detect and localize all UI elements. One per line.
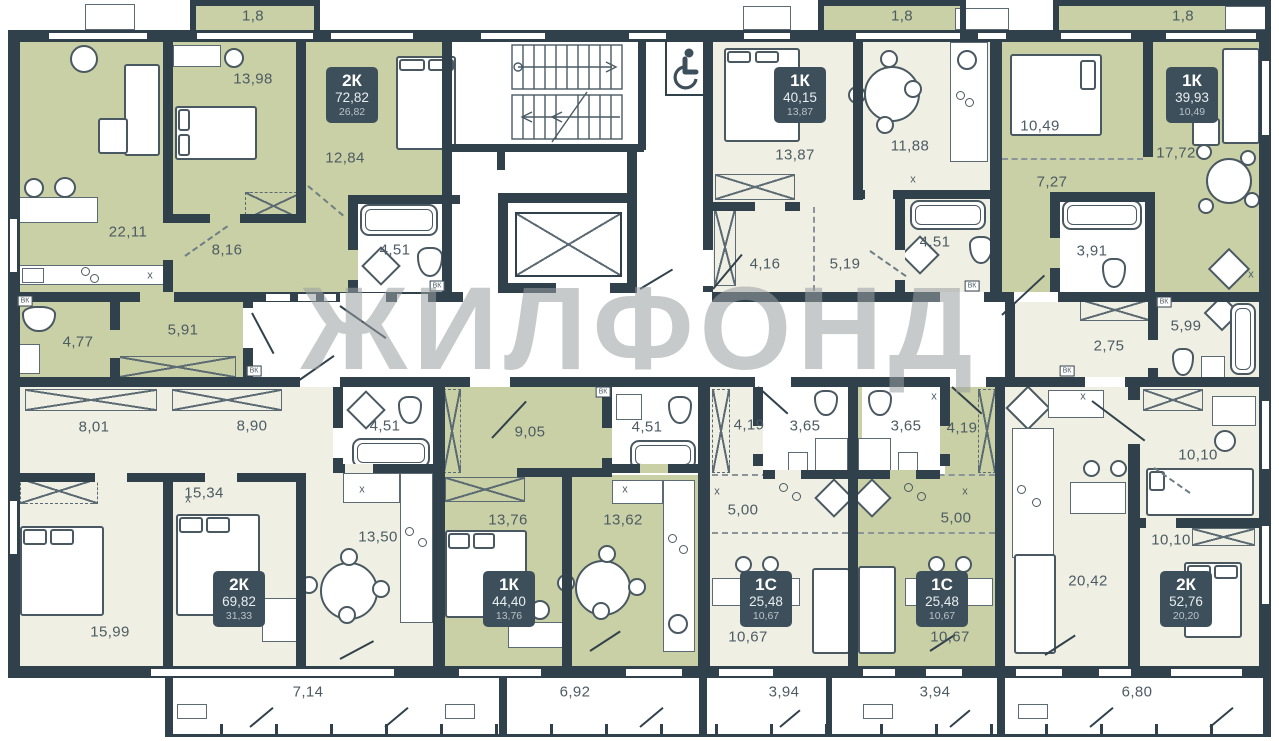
wall [296,473,306,666]
pillow [1214,565,1238,579]
wall-slot [298,294,316,301]
apartment-living-area: 20,20 [1167,610,1205,622]
door-opening [940,292,984,302]
chair [876,116,894,134]
stove [667,533,689,555]
vent-marker: x [622,485,628,496]
washing-machine [616,394,642,420]
chair [1240,150,1256,166]
window [150,668,395,677]
ceiling-lamp [70,45,98,73]
bar-counter [18,197,98,223]
room-area-label: 10,67 [930,630,970,645]
chair [1198,198,1214,214]
window [9,218,18,273]
wall [165,678,173,734]
wall [638,40,646,150]
wall [990,42,1002,294]
wall [433,387,445,666]
wall [190,0,196,32]
apartment-total-area: 69,82 [220,594,258,610]
chair [224,48,244,68]
window [718,668,774,677]
door-opening [865,190,893,199]
apartment-badge-1К: 1К40,1513,87 [774,67,826,123]
balcony-area-label: 1,8 [891,9,913,24]
apartment-total-area: 40,15 [781,90,819,106]
wall-slot [266,294,290,301]
door-opening [140,292,174,302]
wardrobe-hatch [1192,528,1255,546]
wall [8,30,20,678]
wall [1265,0,1271,30]
apartment-living-area: 13,76 [490,610,528,622]
apartment-total-area: 39,93 [1173,90,1211,106]
wardrobe-hatch [715,174,795,200]
door-opening [110,330,120,358]
dashed-divider [712,532,848,534]
room-area-label: 17,72 [1156,146,1196,161]
bathtub [1062,200,1142,230]
room-area-label: 8,01 [79,420,110,435]
wall [960,0,966,30]
window [977,32,1007,40]
chair [338,606,356,624]
wall [610,283,637,293]
room-area-label: 10,49 [1020,119,1060,134]
wall [1143,42,1153,157]
pillow [755,51,779,63]
wall [995,387,1005,666]
wall [314,0,320,32]
kitchen-sink [668,614,688,634]
stove [955,90,975,108]
room-area-label: 20,42 [1068,574,1108,589]
door-opening [95,473,127,482]
wall [163,473,173,666]
door-opening [333,428,343,458]
pillow [178,134,190,156]
apartment-type: 1С [747,576,785,594]
sofa [124,64,160,156]
room-area-label: 4,19 [947,421,978,436]
wall [1053,0,1059,30]
window [1170,668,1243,677]
window [48,32,148,40]
apartment-badge-2К: 2К69,8231,33 [213,571,265,627]
apartment-badge-1С: 1С25,4810,67 [916,571,968,627]
balcony-area-label: 3,94 [920,685,951,700]
kitchen-counter [400,473,433,623]
wall [699,678,707,734]
wall [498,283,556,293]
window [1015,668,1063,677]
bathtub [910,200,986,230]
vk-duct-label: ВК [18,296,33,307]
room-area-label: 11,88 [891,139,929,154]
apartment-living-area: 31,33 [220,610,258,622]
window [9,500,18,555]
chair [340,548,358,566]
window-bay [1225,6,1269,30]
dining-table [1070,482,1126,514]
pillow [179,517,203,533]
stove [1016,484,1042,508]
pillow [23,529,47,545]
wall-slot [397,294,428,302]
wall [18,292,248,302]
vent-marker: x [147,271,153,282]
apartment-total-area: 72,82 [333,90,371,106]
planter [445,704,475,719]
wall [1005,302,1015,377]
wall [562,473,572,666]
wall [499,678,507,734]
sink [18,344,40,374]
door-opening [345,464,373,473]
wall [698,387,710,666]
wall-slot [324,294,336,301]
balcony-area-label: 6,80 [1122,685,1153,700]
wall [627,150,637,293]
door-opening [470,377,510,387]
room-area-label: 4,51 [380,243,411,258]
planter [1018,704,1048,719]
sofa [1014,554,1056,654]
apartment-living-area: 10,49 [1173,106,1211,118]
wall-slot [340,293,386,302]
room-area-label: 13,98 [233,72,273,87]
room-area-label: 5,19 [830,257,861,272]
sofa [1222,48,1260,144]
apartment-living-area: 10,67 [747,610,785,622]
window [628,32,667,40]
room-area-label: 3,65 [790,419,821,434]
kitchen-counter [612,480,663,504]
room-area-label: 10,67 [728,630,768,645]
window [1098,668,1132,677]
shower [815,438,848,471]
wardrobe-hatch [25,389,157,411]
door-opening [1085,377,1125,387]
dashed-divider [813,207,817,291]
window [1165,32,1257,40]
room-area-label: 4,51 [920,235,951,250]
floor-plan: 22,1113,9812,848,164,514,775,9113,8711,8… [0,0,1279,741]
window [862,668,896,677]
apartment-living-area: 10,67 [923,610,961,622]
chair [372,580,390,598]
sink [788,452,808,472]
room-area-label: 3,65 [891,419,922,434]
vk-duct-label: ВК [1060,366,1075,377]
pillow [178,109,190,131]
room-area-label: 2,75 [1094,339,1125,354]
wardrobe-hatch [443,389,461,473]
room-area-label: 4,16 [750,257,781,272]
door-opening [348,250,358,280]
apartment-type: 2К [333,72,371,90]
room-area-label: 10,10 [1151,533,1191,548]
apartment-type: 2К [220,576,258,594]
window [925,668,963,677]
planter [863,704,893,719]
stove [80,266,100,284]
wardrobe-hatch [978,389,996,473]
room-area-label: 13,50 [358,530,398,545]
door-opening [640,464,668,473]
dashed-divider [858,532,995,534]
door-opening [1148,340,1158,368]
apartment-type: 1К [1173,72,1211,90]
balcony-area-label: 7,14 [293,685,324,700]
armchair [98,118,128,154]
room-area-label: 8,16 [212,243,243,258]
apartment-badge-2К: 2К52,7620,20 [1160,571,1212,627]
wall [818,0,966,6]
chair [1244,192,1260,208]
wall [497,152,505,170]
apartment-type: 1К [781,72,819,90]
bathtub [360,204,438,236]
wall [442,42,452,292]
wall [296,42,306,218]
stove [903,482,927,502]
room-area-label: 5,91 [168,323,199,338]
apartment-living-area: 26,82 [333,106,371,118]
sofa [858,566,896,654]
kitchen-sink [22,268,44,283]
wardrobe-hatch [118,356,236,378]
wall [163,42,173,223]
wall [848,387,858,666]
door-opening [703,250,713,286]
bar-stool [54,177,76,198]
wall [498,193,630,203]
balcony-area-label: 1,8 [242,9,264,24]
wardrobe-hatch [1080,299,1150,321]
sofa [812,568,850,654]
door-opening [1050,238,1060,268]
vent-marker: x [962,487,968,498]
apartment-living-area: 13,87 [781,106,819,118]
window [1060,32,1132,40]
pillow [448,533,470,549]
sink [1201,356,1225,378]
door-opening [890,470,916,479]
chair [904,80,922,98]
room-area-label: 5,00 [728,503,759,518]
apartment-total-area: 52,76 [1167,594,1205,610]
room-area-label: 13,62 [603,513,643,528]
planter [177,704,207,719]
wall [1145,202,1155,292]
wall [18,473,163,482]
room-area-label: 3,91 [1077,244,1108,259]
door-opening [755,202,785,211]
door-opening [950,377,986,387]
vent-marker: x [931,392,937,403]
apartment-badge-1К: 1К44,4013,76 [483,571,535,627]
desk [173,45,221,67]
elevator-shaft [515,212,622,277]
vk-duct-label: ВК [1157,297,1172,308]
chair [1083,460,1100,477]
room-area-label: 10,10 [1178,448,1218,463]
vent-marker: x [1080,392,1086,403]
vk-duct-label: ВК [965,281,980,292]
door-opening [775,470,801,479]
chair [592,602,610,620]
door-swing [251,313,274,355]
vent-marker: x [359,485,365,496]
shower [858,438,891,471]
bar-stool [24,178,44,198]
room-area-label: 4,51 [370,419,401,434]
pillow [50,529,74,545]
room-area-label: 4,19 [734,418,765,433]
door-opening [300,377,340,387]
wall [826,678,832,734]
wall [1050,192,1155,202]
vk-duct-label: ВК [430,281,445,292]
door-swing [339,305,386,339]
vent-marker: x [1248,270,1254,281]
chair [598,545,616,563]
wall [18,377,1259,387]
wall [190,0,320,6]
pillow [473,533,495,549]
wall [1053,0,1271,6]
room-area-label: 4,77 [63,335,94,350]
chair [880,50,898,68]
room-area-label: 13,76 [488,513,528,528]
dashed-divider [1002,158,1143,160]
wall [452,144,644,152]
window [743,32,791,40]
window [1261,525,1270,605]
pillow [206,517,230,533]
room-area-label: 22,11 [109,225,147,240]
wall [1263,678,1271,734]
window [196,32,314,40]
window [625,668,683,677]
desk [1212,396,1256,426]
bathtub [1230,303,1256,375]
apartment-total-area: 25,48 [747,594,785,610]
wall [853,42,863,200]
apartment-badge-2К: 2К72,8226,82 [326,67,378,123]
chair [1196,144,1212,160]
room-area-label: 5,00 [941,511,972,526]
balcony-area-label: 3,94 [769,685,800,700]
room-area-label: 7,27 [1037,175,1068,190]
apartment-total-area: 44,40 [490,594,528,610]
window [330,32,414,40]
door-opening [602,428,612,458]
kitchen-sink [957,50,977,70]
chair [1110,460,1127,477]
door-opening [755,377,791,387]
wardrobe-hatch [1143,389,1203,411]
window [480,32,546,40]
apartment-type: 1С [923,576,961,594]
window-bay [85,4,135,30]
room-area-label: 8,90 [237,419,268,434]
window [1261,60,1270,136]
apartment-badge-1С: 1С25,4810,67 [740,571,792,627]
room-area-label: 9,05 [515,425,546,440]
pillow [1080,60,1096,90]
balcony-area-label: 1,8 [1172,9,1194,24]
staircase [452,42,642,146]
room-area-label: 4,51 [632,420,663,435]
stove [778,482,802,502]
balcony-area-label: 6,92 [560,685,591,700]
door-opening [210,214,240,223]
door-opening [1146,518,1176,528]
kitchen-counter [343,473,400,503]
window [855,32,961,40]
vk-duct-label: ВК [596,387,611,398]
wardrobe-hatch [172,389,282,411]
room-area-label: 5,99 [1171,319,1202,334]
door-swing [639,269,673,290]
vk-duct-label: ВК [247,366,262,377]
wall [498,203,508,293]
vent-marker: x [185,495,191,506]
apartment-type: 2К [1167,576,1205,594]
door-opening [205,473,237,482]
room-area-label: 15,99 [90,625,130,640]
apartment-badge-1К: 1К39,9310,49 [1166,67,1218,123]
wall [818,0,824,30]
wardrobe-hatch [445,477,525,502]
room-area-label: 13,87 [775,148,815,163]
apartment-total-area: 25,48 [923,594,961,610]
wall [997,678,1005,734]
vent-marker: x [910,175,916,186]
apartment-type: 1К [490,576,528,594]
window [1261,400,1270,470]
wheelchair-accessible-icon [665,40,705,96]
pillow [727,51,751,63]
room-area-label: 12,84 [325,151,365,166]
stove [404,526,428,548]
railing [165,734,1271,737]
vent-marker: x [714,487,720,498]
pillow [399,59,425,71]
wardrobe-hatch [712,389,730,473]
sink [898,452,918,472]
window [458,668,542,677]
chair [628,578,646,596]
window-bay [743,6,791,30]
